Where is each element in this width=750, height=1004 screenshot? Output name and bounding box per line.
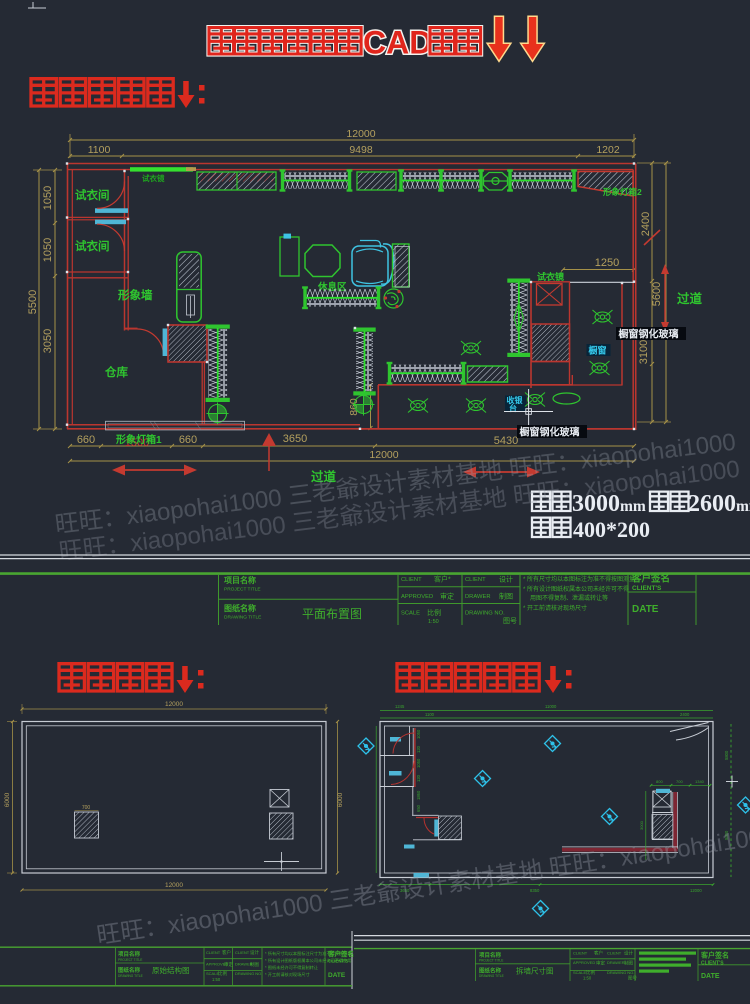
- svg-text:CAD: CAD: [363, 25, 432, 61]
- svg-text:1050: 1050: [416, 729, 421, 739]
- svg-text:设计: 设计: [499, 575, 513, 584]
- svg-text:项目名称: 项目名称: [224, 575, 256, 585]
- svg-text:* 开工前请核对现场尺寸: * 开工前请核对现场尺寸: [523, 604, 587, 612]
- svg-text:6000: 6000: [4, 792, 11, 807]
- svg-text:SCALE: SCALE: [573, 970, 586, 975]
- svg-text:120: 120: [416, 745, 421, 753]
- svg-text:700: 700: [676, 779, 683, 784]
- svg-text:拆墙尺寸图: 拆墙尺寸图: [516, 966, 554, 976]
- svg-text:PROJECT TITLE: PROJECT TITLE: [118, 958, 142, 962]
- svg-text:审定: 审定: [224, 961, 233, 968]
- svg-text:DATE: DATE: [632, 604, 659, 615]
- svg-text:CLIENT: CLIENT: [607, 951, 622, 956]
- svg-text:试衣间: 试衣间: [75, 239, 110, 253]
- svg-text:试衣镜: 试衣镜: [142, 173, 165, 183]
- svg-text:DRAWER: DRAWER: [607, 960, 625, 965]
- svg-text:12000: 12000: [346, 128, 375, 140]
- svg-text:形象灯箱2: 形象灯箱2: [603, 187, 642, 197]
- svg-text:SCALE: SCALE: [401, 611, 420, 617]
- svg-text:APPROVED: APPROVED: [573, 960, 595, 965]
- svg-text:700: 700: [82, 805, 91, 811]
- svg-text:APPROVED: APPROVED: [401, 594, 433, 600]
- svg-text:仓库: 仓库: [104, 365, 128, 379]
- svg-text:1050: 1050: [416, 758, 421, 768]
- svg-text:橱窗钢化玻璃: 橱窗钢化玻璃: [520, 426, 580, 439]
- svg-text:CLIENT: CLIENT: [235, 950, 250, 955]
- svg-text:DATE: DATE: [701, 973, 720, 980]
- svg-text:1100: 1100: [88, 144, 111, 156]
- svg-text:设计: 设计: [624, 950, 633, 957]
- svg-text:CLIENT: CLIENT: [573, 951, 588, 956]
- svg-text:5500: 5500: [27, 290, 39, 314]
- svg-text:项目名称: 项目名称: [118, 950, 141, 958]
- svg-text:客户签名: 客户签名: [631, 573, 670, 585]
- svg-text:客户签名: 客户签名: [700, 951, 729, 960]
- svg-text:原始结构图: 原始结构图: [152, 965, 190, 975]
- svg-text:客户: 客户: [222, 949, 231, 956]
- svg-text:* 所有设计图纸权属本公司未经许可不得: * 所有设计图纸权属本公司未经许可不得: [523, 585, 629, 593]
- svg-text:12000: 12000: [690, 888, 702, 893]
- svg-text:2400: 2400: [640, 212, 652, 236]
- svg-text:CLIENT: CLIENT: [206, 950, 221, 955]
- svg-text:800: 800: [656, 779, 663, 784]
- svg-text:CLIENT'S: CLIENT'S: [632, 585, 662, 592]
- svg-text:客户*: 客户*: [434, 575, 451, 584]
- svg-text:2400: 2400: [680, 712, 690, 717]
- svg-text:审定: 审定: [440, 592, 454, 601]
- svg-text:1050: 1050: [42, 238, 54, 262]
- svg-text:CLIENT: CLIENT: [465, 577, 486, 583]
- svg-text:CLIENT: CLIENT: [401, 577, 422, 583]
- svg-text:客户签名: 客户签名: [327, 949, 354, 958]
- svg-text:DRAWING NO.: DRAWING NO.: [465, 611, 505, 617]
- svg-text:1050: 1050: [42, 186, 54, 210]
- svg-text:DRAWING TITLE: DRAWING TITLE: [224, 615, 261, 621]
- svg-text:DRAWING TITLE: DRAWING TITLE: [118, 974, 143, 978]
- svg-text:8350: 8350: [530, 888, 540, 893]
- svg-text:过道: 过道: [677, 291, 703, 306]
- svg-text:120: 120: [416, 774, 421, 782]
- svg-text:1:50: 1:50: [583, 976, 592, 981]
- svg-text:3000: 3000: [639, 820, 644, 830]
- svg-text:1:50: 1:50: [428, 619, 439, 625]
- svg-text:设计: 设计: [250, 949, 259, 956]
- svg-text:12000: 12000: [165, 882, 183, 889]
- svg-text:DRAWING TITLE: DRAWING TITLE: [479, 974, 504, 978]
- svg-text:12000: 12000: [369, 449, 398, 461]
- svg-text:比例: 比例: [218, 970, 227, 977]
- svg-text:11000: 11000: [545, 704, 557, 709]
- svg-text:* 所有尺寸均以本图标注为准不得按图测量: * 所有尺寸均以本图标注为准不得按图测量: [523, 575, 635, 583]
- svg-text:5800: 5800: [724, 750, 729, 760]
- svg-text:PROJECT TITLE: PROJECT TITLE: [224, 587, 261, 593]
- svg-text:CLIENT'S: CLIENT'S: [701, 961, 724, 967]
- svg-text:图号: 图号: [503, 617, 517, 625]
- svg-text:12000: 12000: [165, 701, 183, 708]
- svg-text:图纸名称: 图纸名称: [224, 603, 256, 613]
- svg-text:试衣间: 试衣间: [75, 188, 110, 202]
- svg-text:图纸名称: 图纸名称: [118, 966, 141, 974]
- svg-text:制图: 制图: [250, 961, 259, 968]
- svg-text:形象墙: 形象墙: [118, 288, 153, 302]
- svg-text:1245: 1245: [395, 704, 405, 709]
- svg-text:3100: 3100: [638, 340, 650, 364]
- svg-text:形象灯箱1: 形象灯箱1: [116, 433, 162, 446]
- svg-text:1:50: 1:50: [212, 977, 221, 982]
- svg-text:1340: 1340: [695, 779, 705, 784]
- svg-text:DRAWER: DRAWER: [465, 594, 491, 600]
- svg-text:3050: 3050: [42, 329, 54, 353]
- svg-text:650: 650: [416, 804, 421, 812]
- svg-text:橱窗钢化玻璃: 橱窗钢化玻璃: [619, 328, 679, 341]
- svg-text:1250: 1250: [595, 257, 619, 269]
- svg-text:1860: 1860: [416, 790, 421, 800]
- svg-text:660: 660: [77, 434, 95, 446]
- svg-text:比例: 比例: [427, 608, 441, 617]
- svg-text:5600: 5600: [651, 282, 663, 306]
- svg-text:用图不得复制、泄漏或转让等: 用图不得复制、泄漏或转让等: [530, 594, 608, 602]
- svg-text:DRAWING NO.: DRAWING NO.: [607, 970, 634, 975]
- svg-text:9498: 9498: [349, 144, 373, 156]
- svg-text:客户: 客户: [594, 950, 603, 957]
- svg-text:6000: 6000: [337, 792, 344, 807]
- svg-text:橱窗: 橱窗: [589, 345, 607, 356]
- svg-text:1100: 1100: [425, 712, 435, 717]
- svg-text:400*200: 400*200: [573, 517, 650, 542]
- svg-text:1202: 1202: [596, 144, 620, 156]
- svg-text:CLIENT'S: CLIENT'S: [328, 959, 348, 964]
- svg-text:5430: 5430: [494, 435, 518, 447]
- svg-text:试衣镜: 试衣镜: [537, 271, 564, 282]
- svg-text:* 图纸未经许可不得复制转让: * 图纸未经许可不得复制转让: [265, 964, 318, 971]
- svg-text:* 开工前请核对现场尺寸: * 开工前请核对现场尺寸: [265, 971, 310, 978]
- svg-text:制图: 制图: [499, 592, 513, 601]
- svg-text:DATE: DATE: [328, 972, 346, 979]
- svg-text:审定: 审定: [596, 960, 605, 967]
- svg-text:PROJECT TITLE: PROJECT TITLE: [479, 959, 503, 963]
- svg-text:制图: 制图: [624, 960, 633, 967]
- svg-text:DRAWING NO.: DRAWING NO.: [235, 971, 262, 976]
- svg-text:660: 660: [179, 434, 197, 446]
- svg-text:平面布置图: 平面布置图: [302, 607, 362, 621]
- svg-text:3650: 3650: [283, 433, 307, 445]
